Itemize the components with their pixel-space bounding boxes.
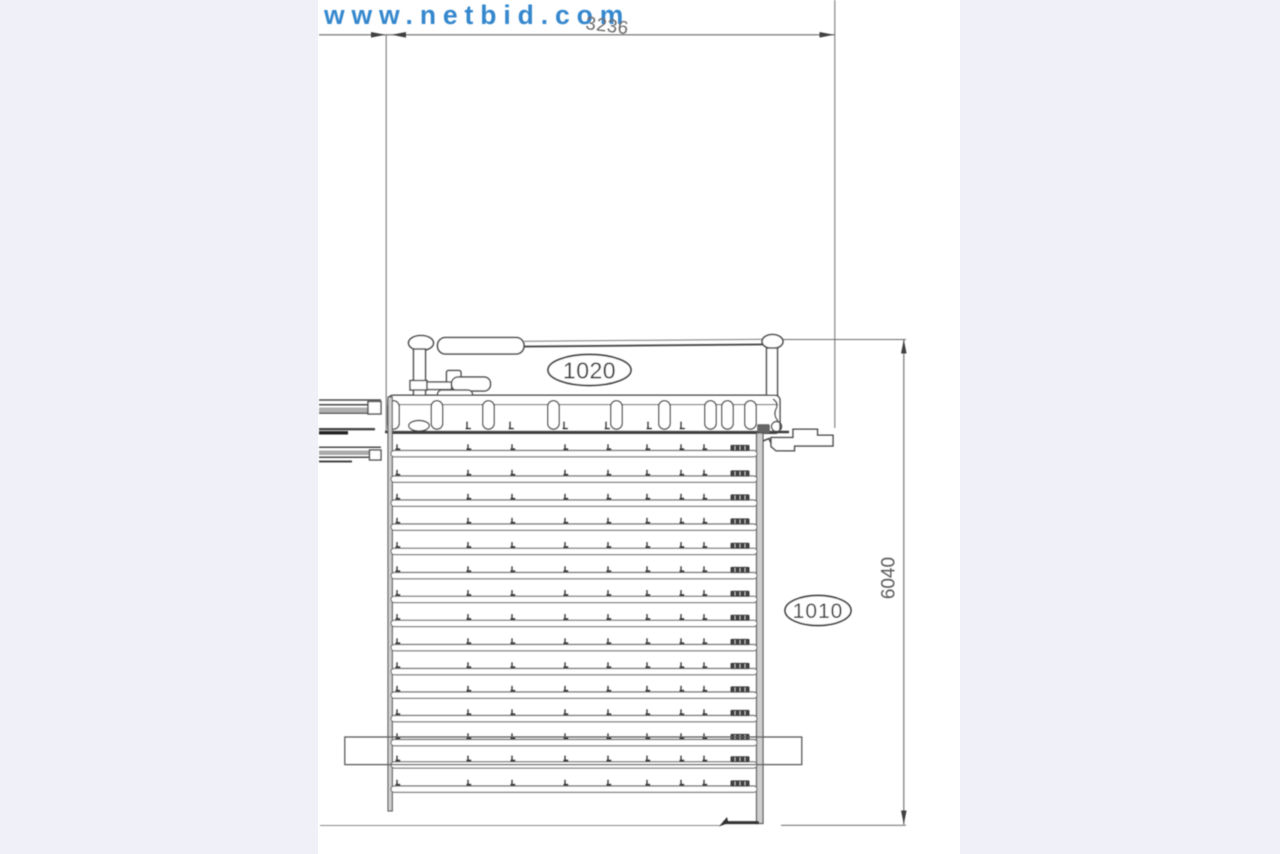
svg-text:1010: 1010 — [793, 600, 844, 623]
svg-text:www.netbid.com: www.netbid.com — [323, 0, 630, 30]
svg-text:1020: 1020 — [563, 358, 616, 384]
svg-text:6040: 6040 — [879, 557, 900, 599]
